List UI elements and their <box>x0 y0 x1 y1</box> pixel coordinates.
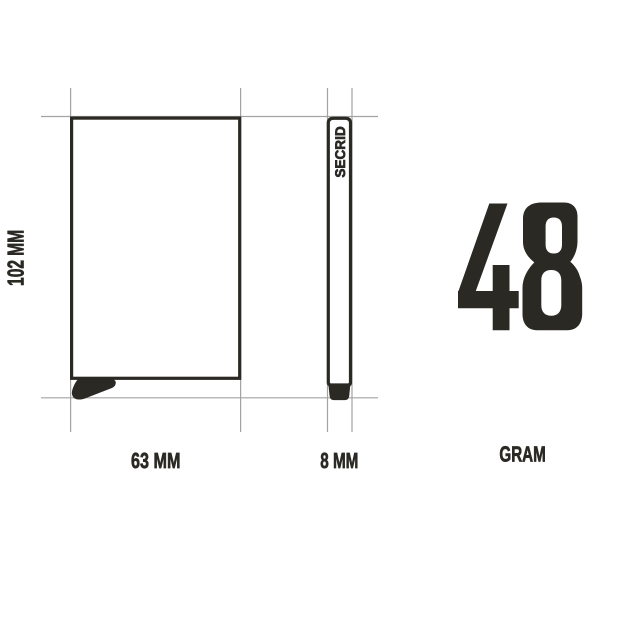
svg-text:GRAM: GRAM <box>499 441 545 466</box>
svg-text:8 MM: 8 MM <box>320 448 358 473</box>
svg-text:102 MM: 102 MM <box>2 230 28 286</box>
svg-text:63 MM: 63 MM <box>131 448 180 473</box>
svg-text:SECRID: SECRID <box>332 126 348 177</box>
